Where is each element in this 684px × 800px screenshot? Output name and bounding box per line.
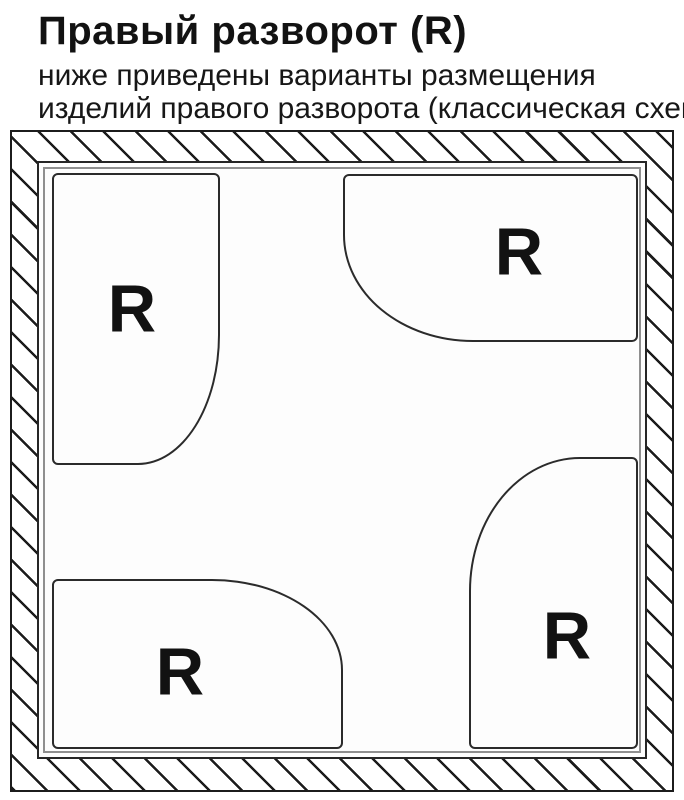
page-subtitle-line-1: ниже приведены варианты размещения [38, 59, 684, 92]
tray-top-left-label: R [108, 276, 156, 343]
tray-top-left: R [52, 173, 220, 465]
page-title: Правый разворот (R) [38, 8, 467, 54]
page: Правый разворот (R) ниже приведены вариа… [0, 0, 684, 800]
page-subtitle-line-2: изделий правого разворота (классическая … [38, 92, 684, 125]
tray-bottom-right-label: R [543, 603, 591, 670]
tray-top-right-label: R [495, 219, 543, 286]
page-subtitle: ниже приведены варианты размещения издел… [38, 59, 684, 125]
room-plan-wall-hatch: R R R R [10, 130, 674, 792]
tray-bottom-left: R [52, 579, 343, 749]
tray-bottom-left-label: R [156, 639, 204, 706]
